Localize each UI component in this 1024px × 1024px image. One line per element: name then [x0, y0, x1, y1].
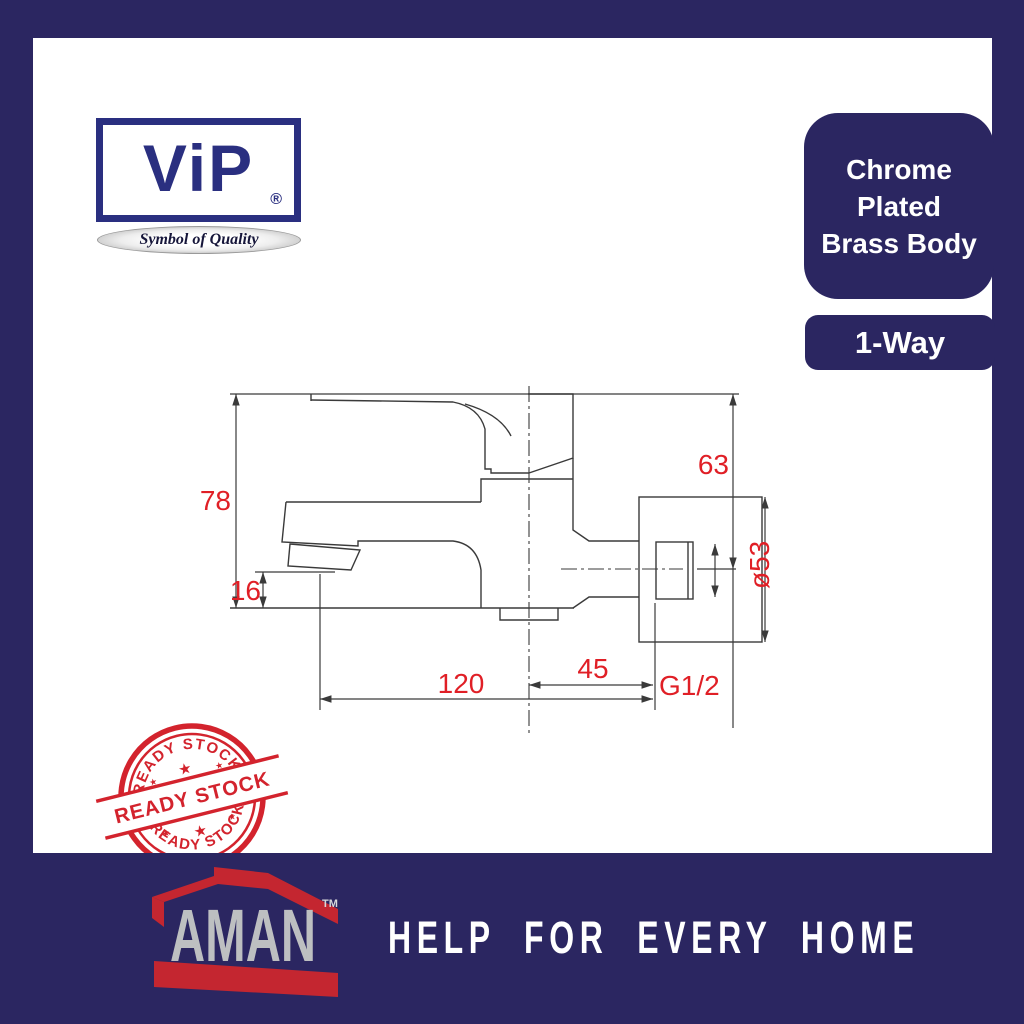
dim-63-label: 63	[698, 449, 729, 480]
dimensions: 78 16 63 ø53 45 120 G1/2	[200, 394, 775, 728]
body-right-pipe-top	[573, 458, 639, 541]
registered-mark-icon: ®	[270, 191, 282, 209]
dim-53-label: ø53	[744, 541, 775, 589]
white-canvas: ViP ® Symbol of Quality Chrome Plated Br…	[33, 38, 992, 853]
aman-trademark: TM	[322, 898, 338, 910]
way-badge: 1-Way	[805, 315, 995, 370]
material-badge-line-2: Plated	[857, 188, 941, 225]
footer-tagline: HELP FOR EVERY HOME	[388, 913, 919, 964]
star-icon: ★	[161, 828, 171, 840]
faucet-outline	[230, 394, 762, 642]
footer-bar: AMAN TM HELP FOR EVERY HOME	[0, 853, 1024, 1024]
dim-45-label: 45	[577, 653, 608, 684]
pipe-bottom	[573, 597, 639, 608]
vip-logo-box: ViP ®	[96, 118, 301, 222]
material-badge: Chrome Plated Brass Body	[804, 113, 994, 299]
product-card: ViP ® Symbol of Quality Chrome Plated Br…	[0, 0, 1024, 1024]
star-icon: ★	[192, 822, 209, 842]
dim-78-label: 78	[200, 485, 231, 516]
material-badge-line-3: Brass Body	[821, 225, 977, 262]
material-badge-line-1: Chrome	[846, 151, 952, 188]
dim-thread-label: G1/2	[659, 670, 720, 701]
dim-120-label: 120	[438, 668, 485, 699]
dim-16-label: 16	[230, 575, 261, 606]
handle-top-edge	[311, 400, 529, 473]
way-badge-label: 1-Way	[855, 325, 945, 361]
vip-wordmark: ViP	[143, 135, 254, 205]
vip-tagline-text: Symbol of Quality	[139, 231, 258, 249]
aman-brand-text: AMAN	[170, 894, 316, 977]
vip-tagline-ellipse: Symbol of Quality	[97, 226, 301, 254]
aerator-block	[288, 544, 360, 570]
body-top	[481, 479, 573, 502]
aman-logo: AMAN TM	[140, 861, 352, 1003]
aman-left-eave-shape	[152, 897, 164, 927]
valve-top-block	[528, 394, 573, 473]
